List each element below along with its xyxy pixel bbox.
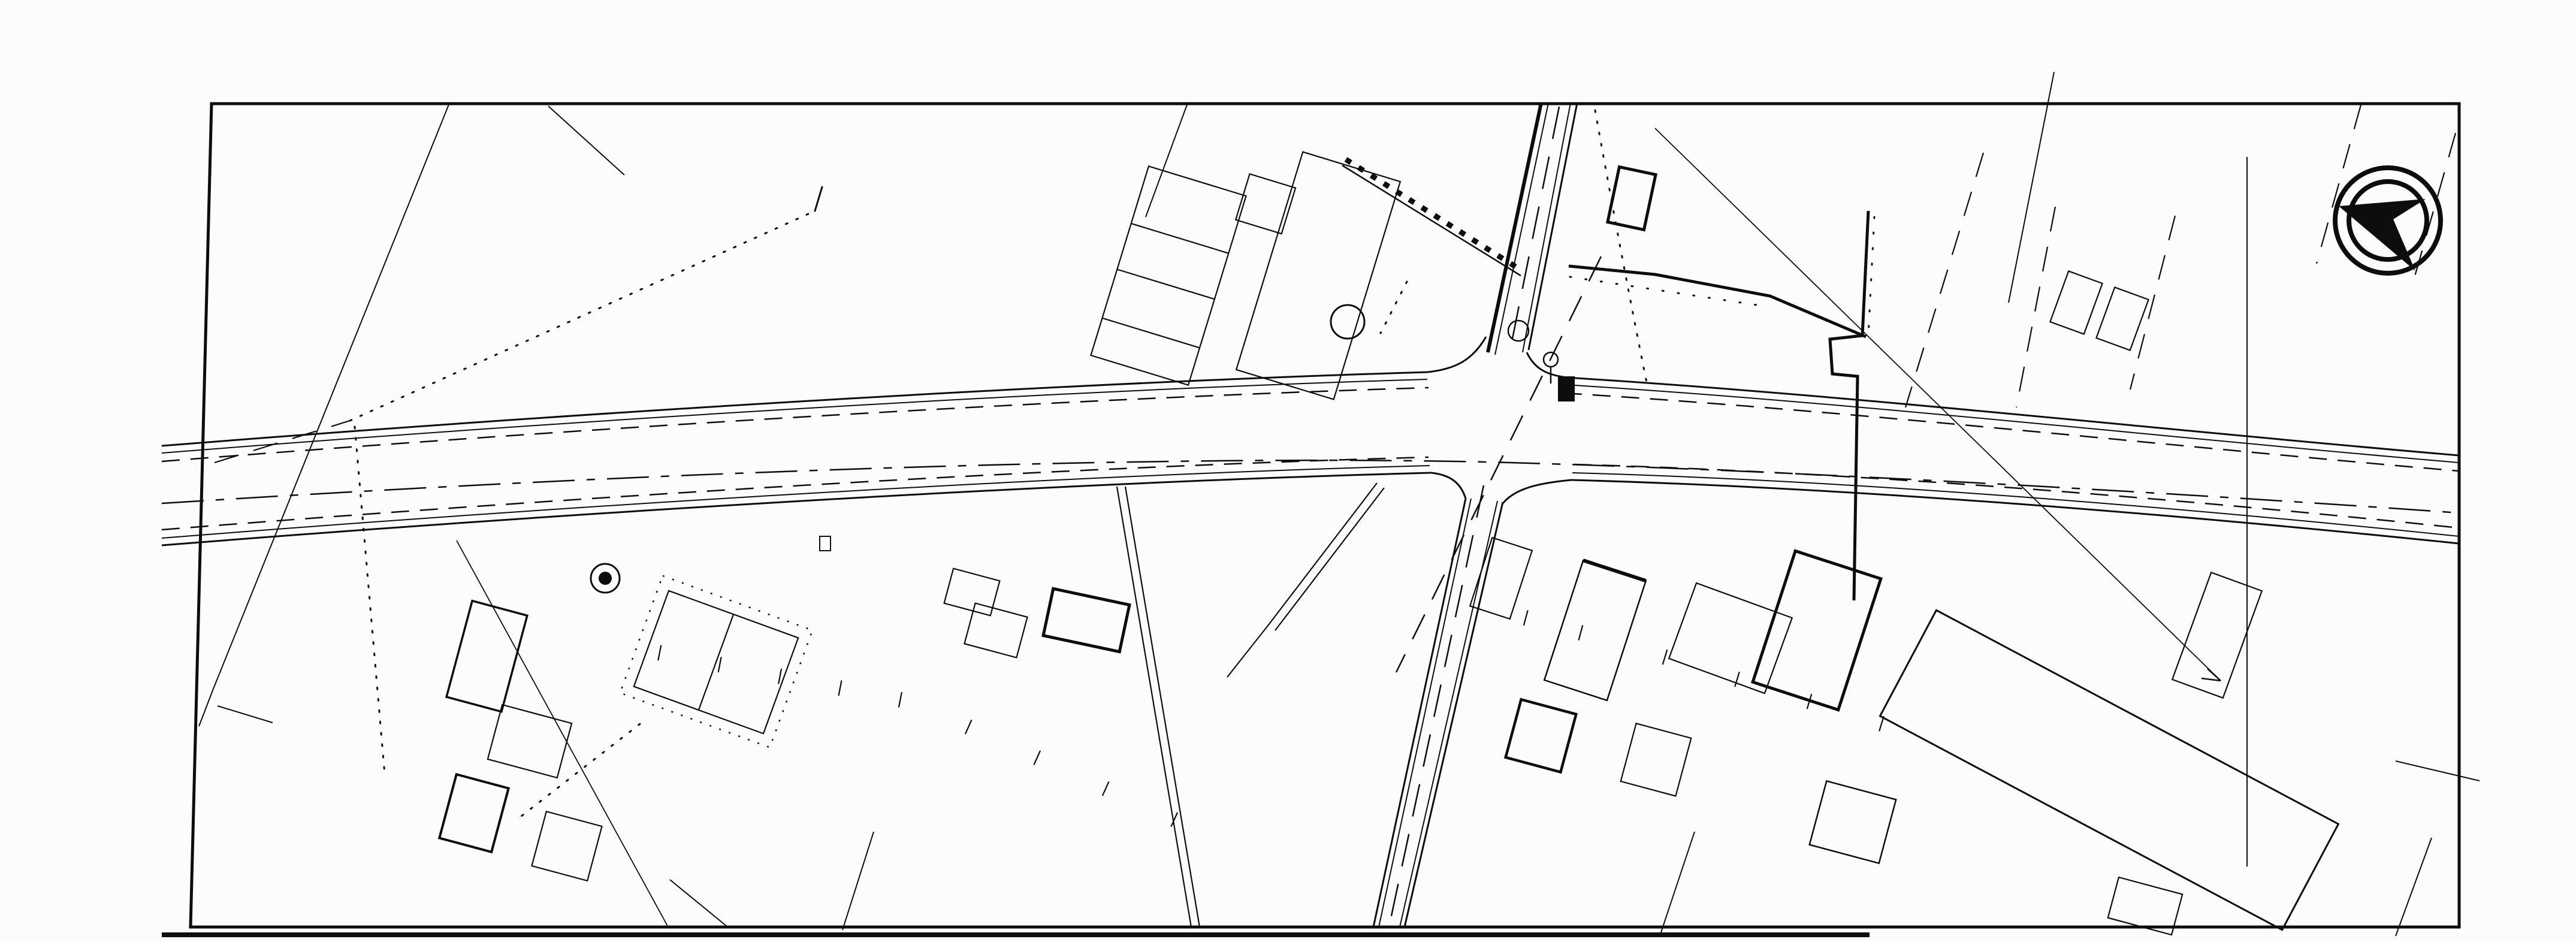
- fence-tick: [778, 669, 781, 684]
- fence-tick: [658, 645, 661, 661]
- fence-tick: [839, 681, 842, 696]
- crossing-road: [1373, 103, 1601, 927]
- generated-details: [658, 611, 1884, 827]
- scan-edge-bar: [162, 932, 1870, 937]
- factory-building: [1880, 610, 2339, 929]
- grid-lines: [199, 72, 2480, 936]
- north-arrow-icon: [2335, 168, 2441, 273]
- fence-tick: [1879, 716, 1884, 731]
- hedge-line: [1342, 159, 1521, 276]
- main-road: [162, 337, 2459, 545]
- fence-tick: [1579, 625, 1583, 640]
- fence-tick: [899, 692, 902, 708]
- road-ledger-sheet: { "header": { "scale": "1:1,000", "title…: [0, 0, 2576, 942]
- fence-tick: [1663, 650, 1668, 665]
- minor-lanes: [457, 128, 2247, 927]
- building-dotted-outline: [620, 576, 813, 747]
- buildings-bold: [439, 551, 1881, 852]
- ne-diagonal-line: [1655, 128, 2221, 681]
- map-canvas: [0, 0, 2576, 942]
- dotted-fence-topleft: [350, 211, 815, 421]
- fence-tick: [1034, 751, 1040, 765]
- left-parcel-line: [457, 541, 668, 927]
- tb-benchmark: [820, 536, 831, 551]
- black-post: [1558, 376, 1575, 401]
- dashed-boundaries: [215, 105, 2456, 463]
- fence-tick: [718, 657, 721, 672]
- path-9-5: [1117, 487, 1191, 927]
- fence-tick: [965, 720, 972, 734]
- boundary-through-intersection: [1396, 256, 1601, 672]
- circled-symbols: [591, 305, 1529, 593]
- wall-lines: [1569, 167, 1868, 600]
- fence-tick: [1524, 611, 1528, 626]
- fence-tick: [1103, 781, 1109, 796]
- road-centerline: [162, 460, 2459, 513]
